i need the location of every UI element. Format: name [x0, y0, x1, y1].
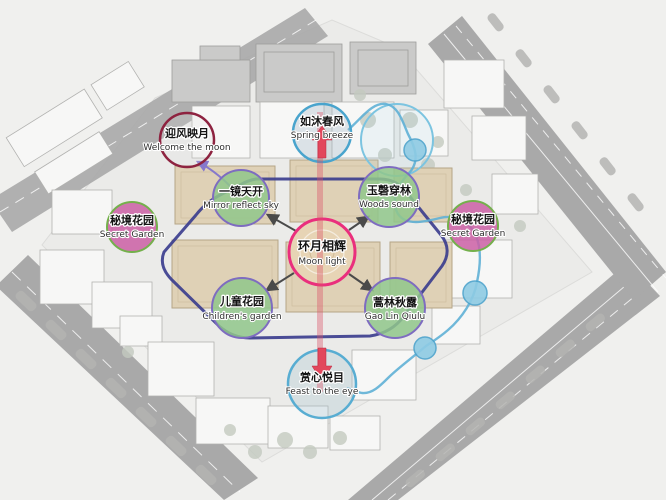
label-gaolin-en: Gao Lin Qiulu [365, 312, 425, 322]
plan-shape [277, 432, 293, 448]
plan-shape [120, 316, 162, 346]
label-woods-sound-en: Woods sound [359, 200, 419, 210]
plan-shape [444, 60, 504, 108]
node-secret-garden-east [448, 201, 498, 251]
label-gaolin-zh: 蒿林秋露 [373, 295, 418, 309]
plan-shape [359, 167, 419, 227]
label-mirror-sky-en: Mirror reflect sky [203, 201, 280, 211]
label-feast-en: Feast to the eye [286, 387, 359, 397]
label-feast-zh: 赏心悦目 [300, 370, 344, 384]
node-children-garden [212, 278, 272, 338]
plan-shape [358, 50, 408, 86]
plan-shape [472, 116, 526, 160]
plan-shape [492, 174, 538, 214]
water-node-icon [414, 337, 436, 359]
node-woods-sound [359, 167, 419, 227]
water-node-icon [404, 139, 426, 161]
plan-shape [303, 445, 317, 459]
label-welcome-moon-zh: 迎风映月 [165, 126, 209, 140]
plan-shape [200, 46, 240, 60]
label-children-en: Children's garden [202, 312, 281, 322]
plan-shape [354, 89, 366, 101]
plan-shape [248, 445, 262, 459]
label-moon-light-en: Moon light [298, 257, 346, 267]
label-woods-sound-zh: 玉磬穿林 [367, 183, 411, 197]
plan-shape [514, 220, 526, 232]
label-secret-west-en: Secret Garden [100, 230, 165, 240]
node-mirror-sky [213, 170, 269, 226]
plan-shape [264, 52, 334, 92]
label-spring-breeze-en: Spring breeze [291, 131, 354, 141]
label-welcome-moon-en: Welcome the moon [143, 143, 230, 153]
plan-shape [107, 202, 157, 252]
plan-shape [333, 431, 347, 445]
plan-shape [448, 201, 498, 251]
label-moon-light-zh: 环月相辉 [298, 238, 346, 253]
plan-shape [460, 184, 472, 196]
label-secret-west-zh: 秘境花园 [110, 213, 154, 227]
plan-shape [122, 346, 134, 358]
water-node-icon [463, 281, 487, 305]
label-children-zh: 儿童花园 [219, 294, 264, 308]
buildings-north-podium [172, 42, 416, 102]
plan-shape [212, 278, 272, 338]
node-welcome-moon [160, 113, 214, 167]
water-feature-circle [361, 104, 433, 176]
plan-shape [172, 60, 250, 102]
plan-shape [224, 424, 236, 436]
plan-shape [196, 398, 270, 444]
site-plan-svg: 迎风映月 Welcome the moon 如沐春风 Spring breeze… [0, 0, 666, 500]
label-secret-east-zh: 秘境花园 [451, 212, 495, 226]
plan-shape [52, 190, 112, 234]
site-plan-canvas: 迎风映月 Welcome the moon 如沐春风 Spring breeze… [0, 0, 666, 500]
label-spring-breeze-zh: 如沐春风 [300, 114, 344, 128]
plan-shape [160, 113, 214, 167]
label-secret-east-en: Secret Garden [441, 229, 506, 239]
label-mirror-sky-zh: 一镜天开 [219, 184, 263, 198]
plan-shape [213, 170, 269, 226]
plan-shape [148, 342, 214, 396]
node-secret-garden-west [107, 202, 157, 252]
